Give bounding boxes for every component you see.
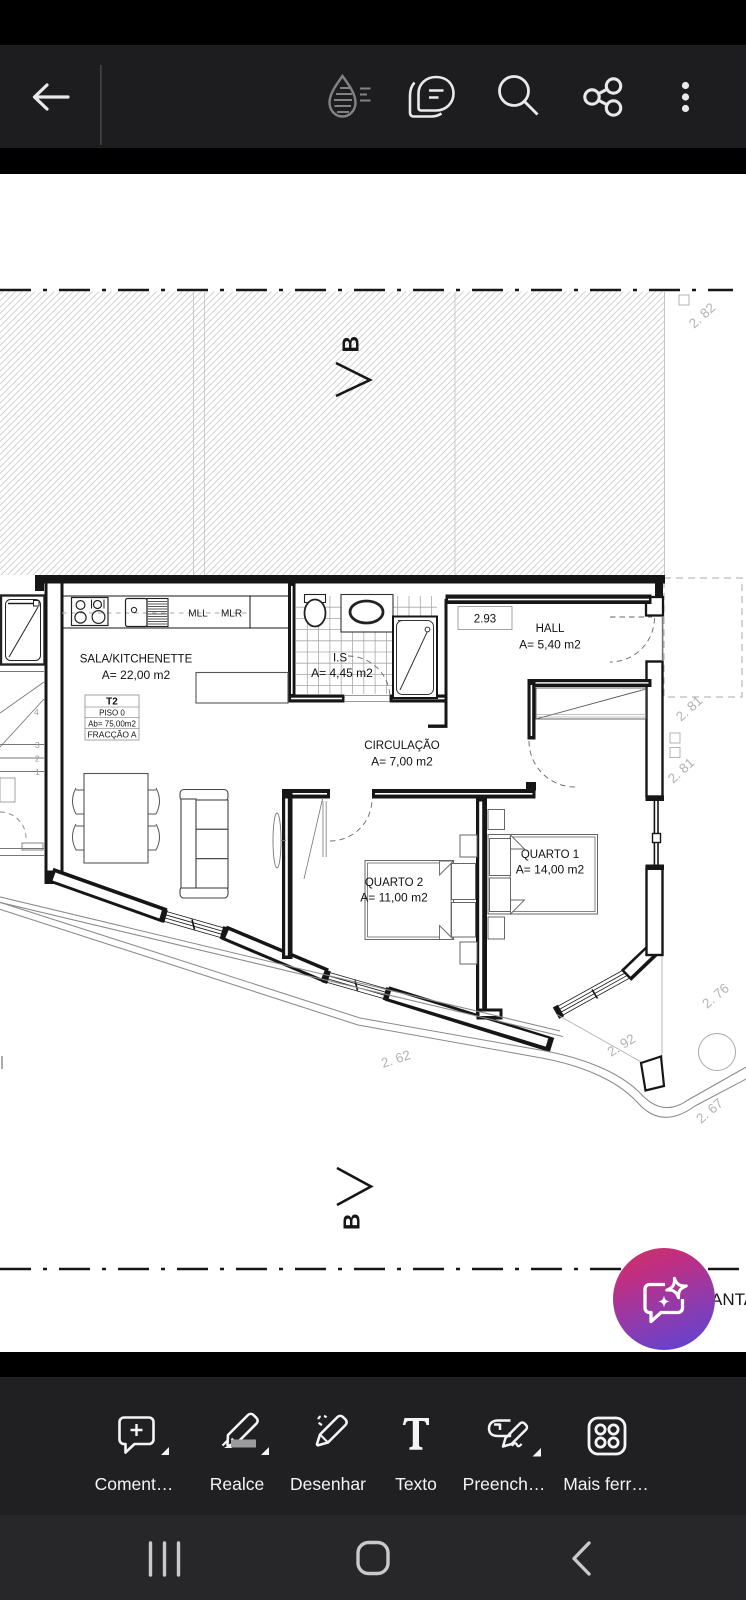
svg-text:ANTA: ANTA bbox=[711, 1290, 746, 1309]
svg-text:A= 14,00 m2: A= 14,00 m2 bbox=[516, 863, 585, 877]
svg-text:Realce: Realce bbox=[210, 1474, 264, 1494]
svg-text:A= 4,45 m2: A= 4,45 m2 bbox=[311, 666, 373, 680]
svg-text:2. 81: 2. 81 bbox=[673, 693, 705, 724]
svg-text:A= 5,40 m2: A= 5,40 m2 bbox=[519, 638, 581, 652]
svg-text:HALL: HALL bbox=[536, 623, 565, 635]
svg-text:3: 3 bbox=[35, 740, 40, 750]
svg-text:2. 81: 2. 81 bbox=[665, 755, 697, 786]
svg-text:MLR: MLR bbox=[221, 609, 242, 620]
svg-text:SALA/KITCHENETTE: SALA/KITCHENETTE bbox=[80, 654, 193, 666]
svg-text:A= 7,00 m2: A= 7,00 m2 bbox=[371, 755, 433, 769]
svg-text:A= 22,00 m2: A= 22,00 m2 bbox=[102, 668, 171, 682]
svg-text:Mais ferr…: Mais ferr… bbox=[563, 1474, 649, 1494]
svg-text:FRACÇÃO A: FRACÇÃO A bbox=[87, 730, 136, 740]
svg-text:2. 62: 2. 62 bbox=[379, 1047, 412, 1071]
svg-text:QUARTO 1: QUARTO 1 bbox=[521, 849, 579, 861]
svg-text:2. 67: 2. 67 bbox=[693, 1096, 726, 1127]
svg-text:Texto: Texto bbox=[395, 1474, 437, 1494]
svg-text:MLL: MLL bbox=[188, 609, 208, 620]
svg-text:B: B bbox=[338, 336, 364, 353]
svg-text:Ab= 75,00m2: Ab= 75,00m2 bbox=[88, 720, 136, 729]
svg-text:Preench…: Preench… bbox=[463, 1474, 546, 1494]
svg-text:Coment…: Coment… bbox=[95, 1474, 174, 1494]
svg-text:PISO 0: PISO 0 bbox=[99, 709, 125, 718]
svg-text:2. 82: 2. 82 bbox=[686, 300, 718, 331]
svg-text:Desenhar: Desenhar bbox=[290, 1474, 366, 1494]
svg-text:QUARTO 2: QUARTO 2 bbox=[365, 877, 423, 889]
svg-text:2. 92: 2. 92 bbox=[605, 1031, 638, 1060]
svg-text:T2: T2 bbox=[106, 697, 118, 708]
svg-text:B: B bbox=[339, 1213, 365, 1230]
svg-text:2: 2 bbox=[35, 754, 40, 764]
svg-text:A= 11,00 m2: A= 11,00 m2 bbox=[360, 891, 428, 905]
svg-text:1: 1 bbox=[35, 767, 40, 777]
svg-text:4: 4 bbox=[34, 707, 39, 717]
svg-text:2. 76: 2. 76 bbox=[699, 981, 732, 1012]
svg-text:2.93: 2.93 bbox=[474, 614, 496, 626]
svg-text:CIRCULAÇÃO: CIRCULAÇÃO bbox=[364, 739, 439, 752]
svg-text:I.S: I.S bbox=[333, 653, 347, 665]
